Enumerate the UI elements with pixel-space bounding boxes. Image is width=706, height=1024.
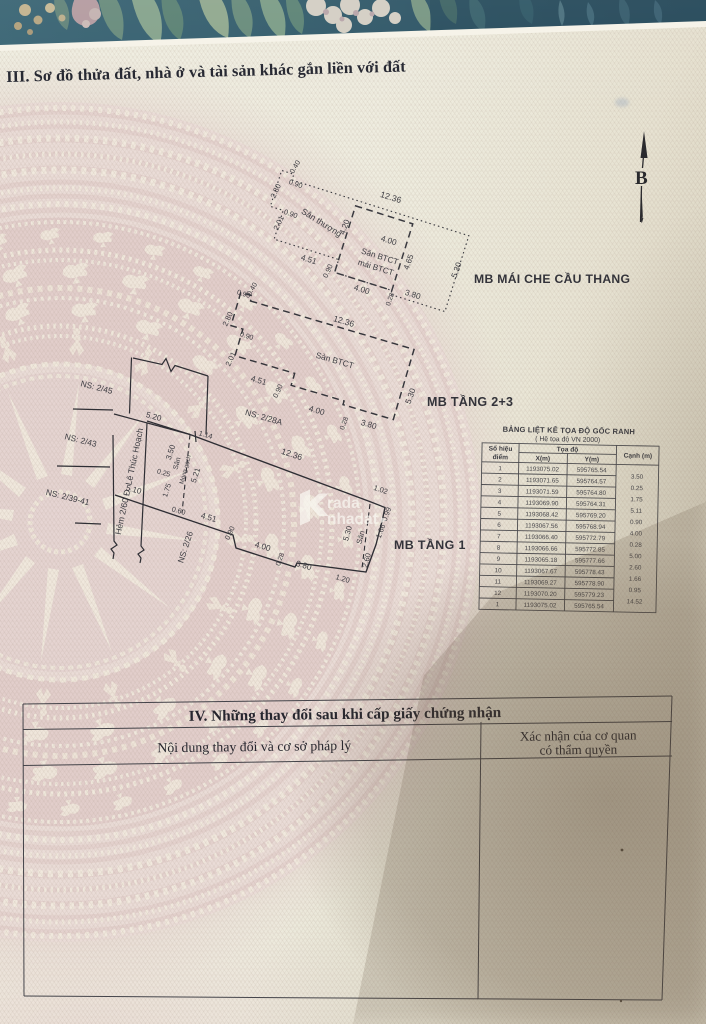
- svg-text:4.51: 4.51: [250, 374, 268, 387]
- svg-text:2.60: 2.60: [360, 552, 373, 569]
- svg-text:0.25: 0.25: [631, 485, 644, 492]
- svg-text:595765.54: 595765.54: [574, 603, 604, 611]
- svg-text:Số hiệu: Số hiệu: [489, 444, 513, 452]
- svg-text:5: 5: [497, 511, 501, 518]
- svg-text:Sân thượng: Sân thượng: [300, 206, 344, 239]
- svg-text:595779.23: 595779.23: [574, 592, 604, 600]
- svg-text:4.00: 4.00: [630, 530, 643, 537]
- svg-text:có thẩm quyền: có thẩm quyền: [539, 742, 617, 758]
- svg-text:Sân: Sân: [354, 530, 366, 545]
- svg-text:14.52: 14.52: [627, 598, 643, 605]
- svg-text:4.65: 4.65: [402, 253, 416, 271]
- svg-text:1193066.40: 1193066.40: [525, 534, 558, 542]
- svg-text:nhadat: nhadat: [327, 511, 378, 528]
- svg-text:B: B: [635, 168, 648, 189]
- svg-text:5.30: 5.30: [450, 261, 464, 279]
- svg-text:Hẻm 2/60 Đ. Lê Thúc Hoạch: Hẻm 2/60 Đ. Lê Thúc Hoạch: [113, 427, 145, 536]
- svg-text:1193070.20: 1193070.20: [524, 591, 557, 599]
- svg-text:10: 10: [495, 567, 503, 574]
- svg-text:6: 6: [497, 522, 501, 529]
- svg-text:4.00: 4.00: [353, 283, 371, 297]
- svg-text:1.20: 1.20: [335, 572, 351, 585]
- svg-text:1193069.27: 1193069.27: [524, 579, 557, 587]
- svg-text:12.36: 12.36: [280, 446, 304, 462]
- svg-text:MB TẦNG 2+3: MB TẦNG 2+3: [427, 394, 513, 409]
- svg-text:595777.66: 595777.66: [575, 557, 605, 565]
- svg-text:5.21: 5.21: [189, 467, 202, 484]
- svg-text:595772.85: 595772.85: [575, 546, 605, 554]
- svg-text:8: 8: [497, 545, 501, 552]
- svg-text:595768.94: 595768.94: [576, 523, 606, 531]
- svg-text:11: 11: [495, 579, 502, 586]
- svg-text:12.36: 12.36: [332, 313, 356, 329]
- svg-text:NS: 2/39-41: NS: 2/39-41: [45, 487, 91, 508]
- svg-text:1: 1: [498, 465, 502, 472]
- svg-text:3.80: 3.80: [360, 418, 378, 431]
- svg-text:595769.20: 595769.20: [576, 512, 606, 520]
- svg-text:Sân: Sân: [173, 457, 183, 471]
- svg-text:595764.57: 595764.57: [576, 478, 606, 486]
- svg-text:MB TẦNG 1: MB TẦNG 1: [394, 537, 466, 552]
- svg-text:NS: 2/43: NS: 2/43: [64, 431, 98, 449]
- svg-text:3.80: 3.80: [295, 559, 313, 572]
- svg-text:0.95: 0.95: [629, 587, 642, 594]
- svg-text:4: 4: [498, 499, 502, 506]
- svg-text:1193067.67: 1193067.67: [524, 568, 557, 576]
- svg-text:Cạnh (m): Cạnh (m): [624, 453, 653, 461]
- svg-text:4.51: 4.51: [200, 511, 218, 524]
- svg-text:Sàn BTCT: Sàn BTCT: [315, 350, 355, 371]
- svg-text:595765.54: 595765.54: [577, 467, 607, 475]
- svg-text:Nội dung thay đổi và cơ sở phá: Nội dung thay đổi và cơ sở pháp lý: [157, 738, 351, 755]
- svg-text:1.75: 1.75: [630, 496, 643, 503]
- svg-text:1193069.90: 1193069.90: [525, 500, 558, 508]
- svg-text:0.90: 0.90: [630, 519, 643, 526]
- svg-text:2.01: 2.01: [272, 214, 286, 231]
- svg-text:0.90: 0.90: [288, 177, 304, 190]
- svg-text:1193066.66: 1193066.66: [525, 545, 558, 553]
- svg-text:1.66: 1.66: [629, 576, 642, 583]
- svg-text:12.36: 12.36: [379, 189, 403, 205]
- svg-text:1.75: 1.75: [160, 482, 173, 498]
- svg-text:0.40: 0.40: [287, 158, 302, 175]
- svg-text:Tọa độ: Tọa độ: [557, 446, 579, 453]
- svg-text:1193065.18: 1193065.18: [524, 556, 557, 564]
- svg-text:X(m): X(m): [535, 455, 550, 462]
- svg-text:0.28: 0.28: [385, 292, 396, 307]
- svg-text:9: 9: [497, 556, 501, 563]
- svg-text:4.51: 4.51: [300, 253, 318, 267]
- svg-text:1193071.59: 1193071.59: [526, 488, 559, 496]
- svg-text:595778.43: 595778.43: [575, 569, 605, 577]
- svg-text:NS: 2/26: NS: 2/26: [175, 530, 195, 564]
- svg-text:MB MÁI CHE CẦU THANG: MB MÁI CHE CẦU THANG: [474, 271, 630, 286]
- svg-text:rada: rada: [327, 495, 360, 512]
- svg-text:NS: 2/45: NS: 2/45: [80, 378, 114, 396]
- svg-text:595772.79: 595772.79: [575, 535, 605, 543]
- svg-text:( Hệ tọa độ VN 2000): ( Hệ tọa độ VN 2000): [535, 436, 600, 444]
- svg-text:595778.90: 595778.90: [574, 580, 604, 588]
- svg-text:2.60: 2.60: [629, 564, 642, 571]
- svg-text:0.90: 0.90: [239, 331, 254, 342]
- svg-text:4.00: 4.00: [254, 540, 272, 553]
- svg-text:0.90: 0.90: [271, 383, 285, 399]
- svg-text:BẢNG LIỆT KÊ TỌA ĐỘ GỐC RANH: BẢNG LIỆT KÊ TỌA ĐỘ GỐC RANH: [503, 424, 636, 437]
- svg-text:0.25: 0.25: [156, 468, 171, 479]
- svg-text:12: 12: [494, 590, 502, 597]
- svg-text:5.30: 5.30: [404, 387, 418, 405]
- svg-text:7: 7: [497, 533, 501, 540]
- svg-text:5.00: 5.00: [629, 553, 642, 560]
- svg-text:2.80: 2.80: [269, 182, 283, 199]
- svg-text:1193075.02: 1193075.02: [526, 466, 559, 474]
- svg-text:3: 3: [498, 488, 502, 495]
- svg-text:0.90: 0.90: [223, 525, 237, 541]
- svg-text:0.28: 0.28: [629, 542, 642, 549]
- svg-text:0.90: 0.90: [321, 263, 335, 279]
- svg-text:1.02: 1.02: [373, 483, 389, 496]
- svg-text:Y(m): Y(m): [584, 456, 599, 463]
- svg-text:NS: 2/28A: NS: 2/28A: [244, 407, 284, 427]
- svg-text:1: 1: [496, 601, 500, 608]
- svg-text:4.00: 4.00: [380, 234, 398, 248]
- svg-text:1193071.65: 1193071.65: [526, 477, 559, 485]
- svg-text:1193067.56: 1193067.56: [525, 522, 558, 530]
- svg-text:0.28: 0.28: [339, 416, 350, 431]
- svg-text:0.28: 0.28: [275, 552, 286, 567]
- svg-text:1193075.02: 1193075.02: [524, 602, 557, 610]
- svg-text:IV. Những thay đổi sau khi cấp: IV. Những thay đổi sau khi cấp giấy chứn…: [189, 704, 502, 725]
- svg-text:4.00: 4.00: [308, 404, 326, 417]
- svg-text:điểm: điểm: [493, 453, 509, 461]
- svg-text:3.80: 3.80: [404, 288, 422, 302]
- svg-text:3.50: 3.50: [631, 474, 644, 481]
- svg-text:5.11: 5.11: [630, 508, 642, 515]
- svg-text:1193068.42: 1193068.42: [525, 511, 558, 519]
- svg-text:2: 2: [498, 477, 502, 484]
- svg-text:595764.80: 595764.80: [576, 489, 606, 497]
- svg-text:595764.31: 595764.31: [576, 501, 606, 509]
